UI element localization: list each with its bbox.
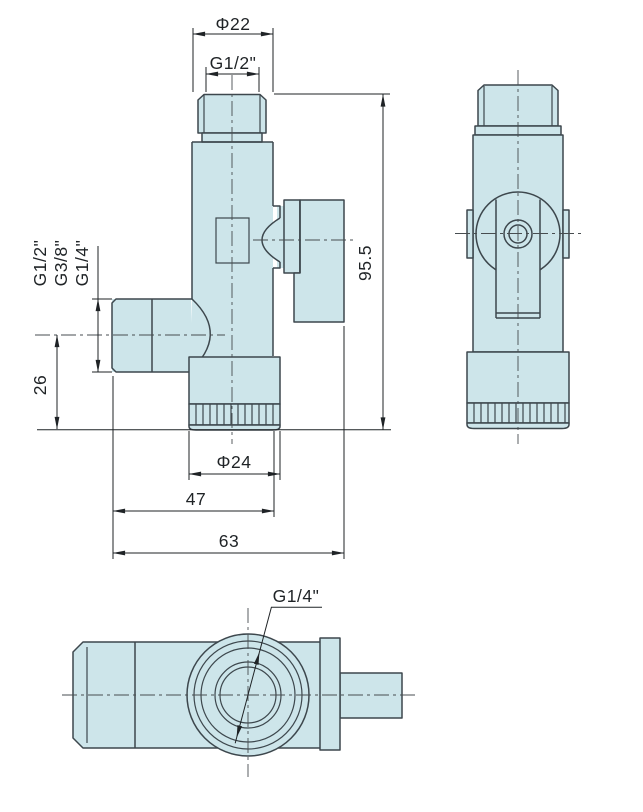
phi22-dimension-label: Φ22: [216, 14, 251, 34]
g12-thread-label: G1/2": [210, 53, 257, 73]
height-95-5-label: 95.5: [355, 245, 375, 281]
drawing-canvas: Φ22 G1/2" 95.5 G1/2" G3/8" G1/4" 26 Φ24 …: [0, 0, 643, 812]
bottom-view: [62, 608, 417, 777]
technical-drawing-svg: Φ22 G1/2" 95.5 G1/2" G3/8" G1/4" 26 Φ24 …: [0, 0, 643, 812]
dim-26-label: 26: [30, 375, 50, 395]
g14-port-label: G1/4": [273, 586, 320, 606]
dim-47-label: 47: [186, 489, 206, 509]
side-view: [455, 70, 582, 444]
outlet-thread-g38-label: G3/8": [51, 240, 71, 287]
dim-63-label: 63: [219, 531, 239, 551]
phi24-dimension-label: Φ24: [217, 452, 252, 472]
outlet-thread-g14-label: G1/4": [72, 240, 92, 287]
outlet-thread-g12-label: G1/2": [30, 240, 50, 287]
